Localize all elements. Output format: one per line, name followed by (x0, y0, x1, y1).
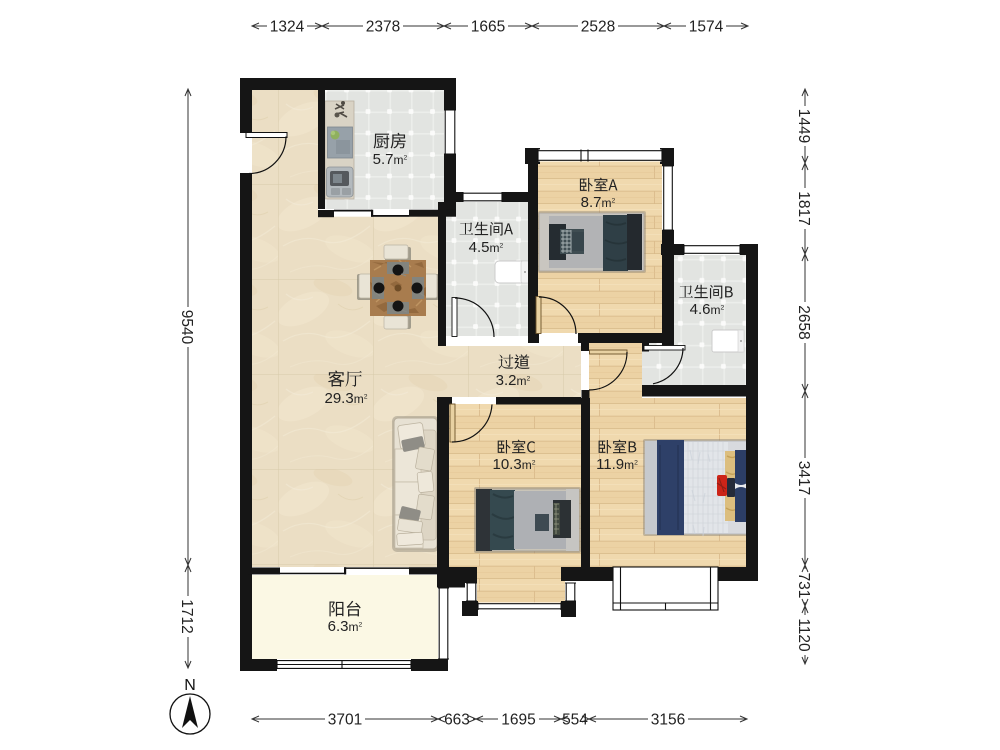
svg-text:1120: 1120 (796, 618, 813, 652)
svg-text:5.7m2: 5.7m2 (373, 151, 408, 168)
svg-text:9540: 9540 (179, 310, 196, 345)
svg-text:11.9m2: 11.9m2 (596, 456, 638, 473)
svg-text:10.3m2: 10.3m2 (493, 456, 536, 473)
svg-text:663: 663 (444, 711, 470, 728)
svg-text:1449: 1449 (796, 109, 813, 143)
svg-text:4.6m2: 4.6m2 (690, 301, 725, 318)
svg-text:2528: 2528 (581, 18, 615, 35)
svg-text:554: 554 (562, 711, 588, 728)
svg-text:2658: 2658 (796, 305, 813, 339)
svg-text:1665: 1665 (471, 18, 505, 35)
svg-text:8.7m2: 8.7m2 (581, 194, 616, 211)
svg-text:3156: 3156 (651, 711, 685, 728)
svg-text:3.2m2: 3.2m2 (496, 372, 531, 389)
svg-text:6.3m2: 6.3m2 (328, 618, 363, 635)
svg-text:1712: 1712 (179, 599, 196, 633)
svg-text:29.3m2: 29.3m2 (325, 390, 368, 407)
svg-text:3417: 3417 (796, 461, 813, 495)
svg-text:4.5m2: 4.5m2 (469, 239, 504, 256)
svg-text:2378: 2378 (366, 18, 400, 35)
svg-text:1817: 1817 (796, 191, 813, 225)
svg-text:N: N (184, 677, 196, 694)
svg-text:731: 731 (796, 573, 813, 599)
svg-text:1574: 1574 (689, 18, 724, 35)
svg-text:3701: 3701 (328, 711, 362, 728)
svg-text:1695: 1695 (501, 711, 535, 728)
svg-text:1324: 1324 (270, 18, 305, 35)
